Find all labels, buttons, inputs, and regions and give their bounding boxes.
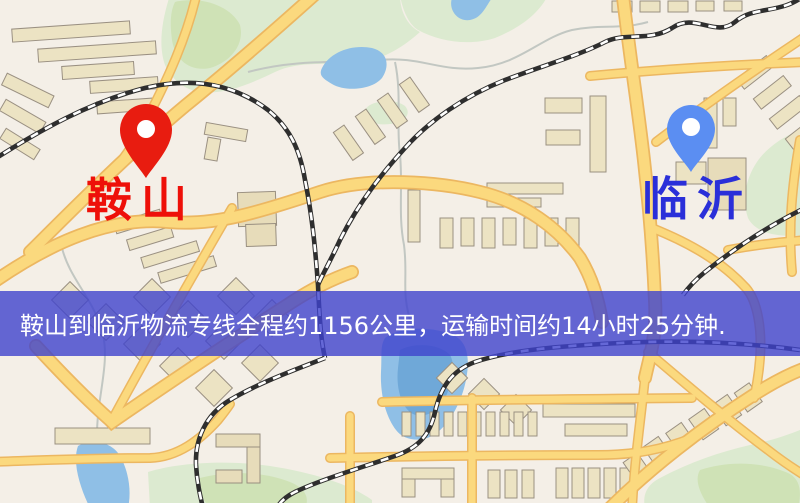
pond-bottom-left [76,442,130,503]
map-canvas [0,0,800,503]
route-info-banner: 鞍山到临沂物流专线全程约1156公里，运输时间约14小时25分钟. [0,291,800,356]
origin-city-label: 鞍山 [86,177,196,223]
map: 鞍山 临沂 鞍山到临沂物流专线全程约1156公里，运输时间约14小时25分钟. [0,0,800,503]
origin-pin-icon[interactable] [120,104,172,178]
destination-city-label: 临沂 [642,176,752,222]
route-info-text: 鞍山到临沂物流专线全程约1156公里，运输时间约14小时25分钟. [0,306,726,341]
